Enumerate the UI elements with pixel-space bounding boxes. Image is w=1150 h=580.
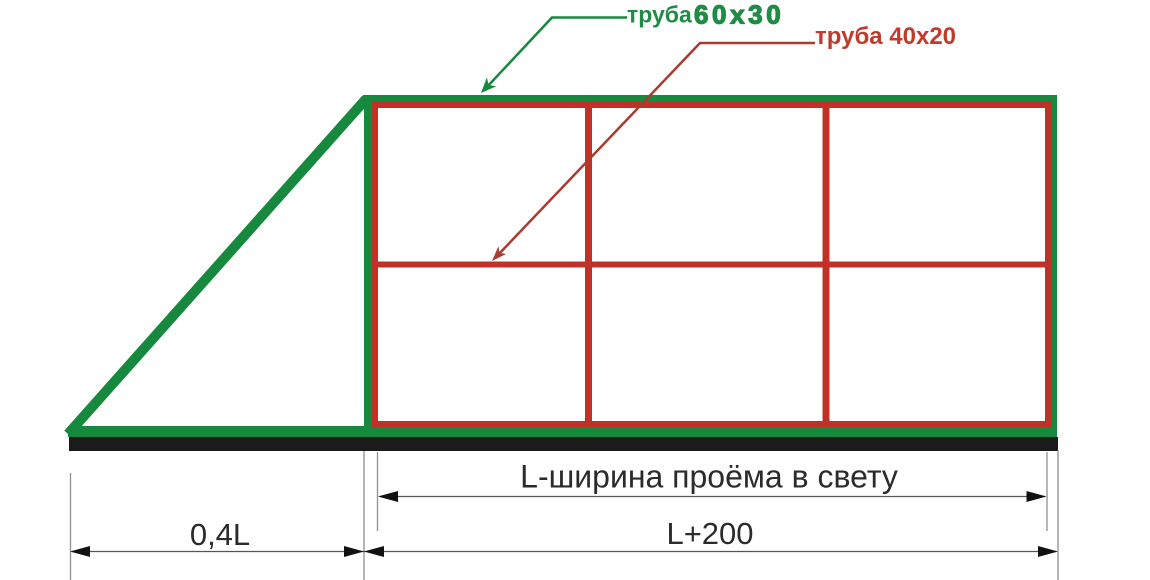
svg-text:0,4L: 0,4L [190,517,250,552]
svg-text:труба: труба [627,2,692,28]
svg-text:60х30: 60х30 [694,0,784,30]
svg-text:L+200: L+200 [666,516,753,551]
svg-text:L-ширина проёма в свету: L-ширина проёма в свету [520,459,898,495]
svg-text:труба 40х20: труба 40х20 [815,23,956,50]
